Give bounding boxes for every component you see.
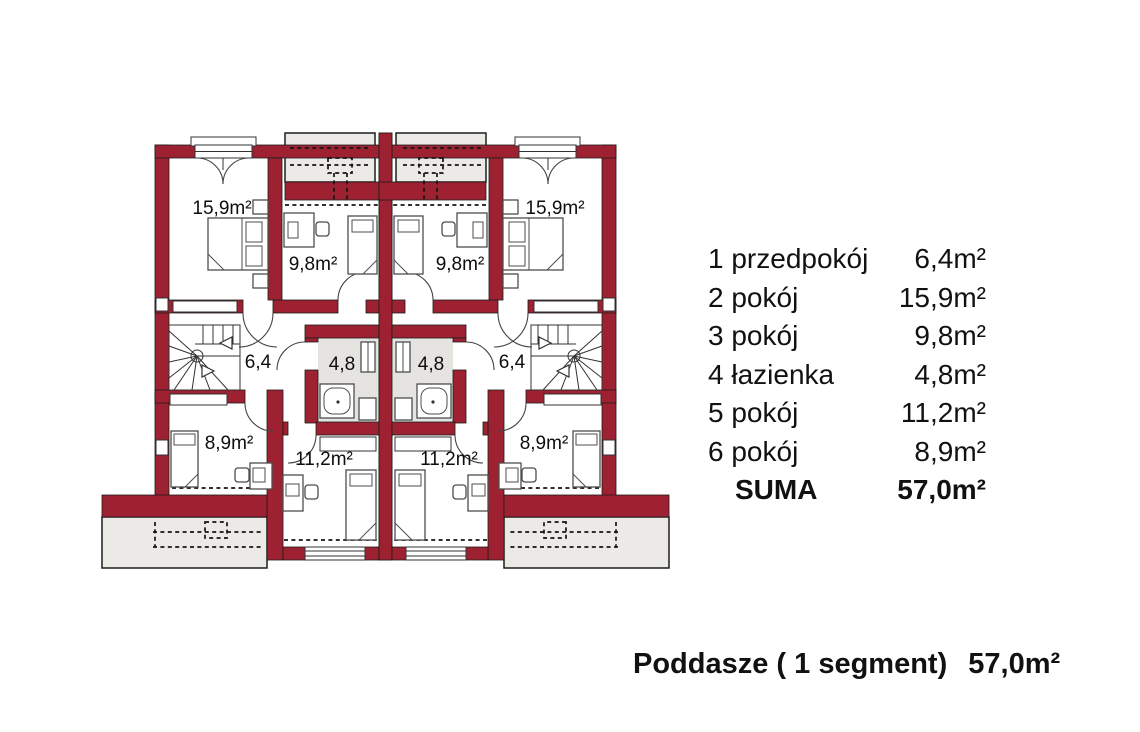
legend-room-area: 9,8m² (914, 317, 986, 356)
legend-room-name: 6 pokój (708, 433, 798, 472)
plan-caption-title: Poddasze ( 1 segment) (633, 648, 947, 680)
room-label-right-hall: 6,4 (499, 352, 526, 373)
legend-room-name: 4 łazienka (708, 356, 834, 395)
room-label-left-bath: 4,8 (329, 354, 355, 375)
room-label-left-pokoj3: 9,8m² (289, 254, 338, 275)
room-legend: 1 przedpokój 6,4m² 2 pokój 15,9m² 3 pokó… (708, 240, 986, 510)
legend-total-row: SUMA 57,0m² (708, 471, 986, 510)
room-label-left-pokoj6: 8,9m² (205, 433, 254, 454)
page: 15,9m² 9,8m² 6,4 4,8 8,9m² 11,2m² 15,9m²… (0, 0, 1140, 732)
plan-caption-area: 57,0m² (968, 648, 1060, 680)
legend-room-name: 5 pokój (708, 394, 798, 433)
room-label-right-pokoj3: 9,8m² (436, 254, 485, 275)
room-label-right-bath: 4,8 (418, 354, 444, 375)
legend-row: 3 pokój 9,8m² (708, 317, 986, 356)
legend-room-name: 2 pokój (708, 279, 798, 318)
floor-plan: 15,9m² 9,8m² 6,4 4,8 8,9m² 11,2m² 15,9m²… (100, 110, 675, 585)
legend-total-area: 57,0m² (897, 471, 986, 510)
legend-total-label: SUMA (735, 471, 817, 510)
room-label-right-pokoj5: 11,2m² (420, 449, 478, 470)
legend-room-name: 3 pokój (708, 317, 798, 356)
legend-row: 1 przedpokój 6,4m² (708, 240, 986, 279)
legend-row: 4 łazienka 4,8m² (708, 356, 986, 395)
plan-caption: Poddasze ( 1 segment)57,0m² (633, 648, 1060, 681)
room-label-left-pokoj5: 11,2m² (295, 449, 353, 470)
room-label-left-hall: 6,4 (245, 352, 272, 373)
legend-room-area: 8,9m² (914, 433, 986, 472)
staircase (169, 325, 240, 390)
legend-room-area: 6,4m² (914, 240, 986, 279)
legend-room-area: 4,8m² (914, 356, 986, 395)
legend-row: 2 pokój 15,9m² (708, 279, 986, 318)
legend-row: 6 pokój 8,9m² (708, 433, 986, 472)
legend-room-area: 15,9m² (899, 279, 986, 318)
legend-room-area: 11,2m² (901, 394, 986, 433)
house-right-segment (379, 133, 669, 568)
room-label-right-pokoj2: 15,9m² (525, 198, 584, 219)
legend-row: 5 pokój 11,2m² (708, 394, 986, 433)
legend-room-name: 1 przedpokój (708, 240, 868, 279)
room-label-right-pokoj6: 8,9m² (520, 433, 569, 454)
room-label-left-pokoj2: 15,9m² (192, 198, 251, 219)
